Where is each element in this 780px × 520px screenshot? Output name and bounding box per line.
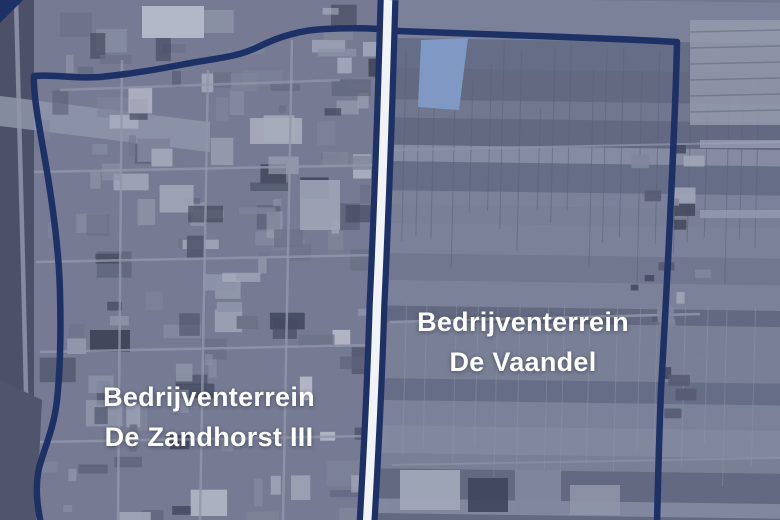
vaandel-label-line2: De Vaandel	[417, 342, 629, 382]
zandhorst-label-line1: Bedrijventerrein	[103, 377, 315, 417]
vaandel-label: Bedrijventerrein De Vaandel	[417, 302, 629, 382]
aerial-map: Bedrijventerrein De Zandhorst III Bedrij…	[0, 0, 780, 520]
vaandel-label-line1: Bedrijventerrein	[417, 302, 629, 342]
zandhorst-label-line2: De Zandhorst III	[103, 417, 315, 457]
zandhorst-label: Bedrijventerrein De Zandhorst III	[103, 377, 315, 457]
